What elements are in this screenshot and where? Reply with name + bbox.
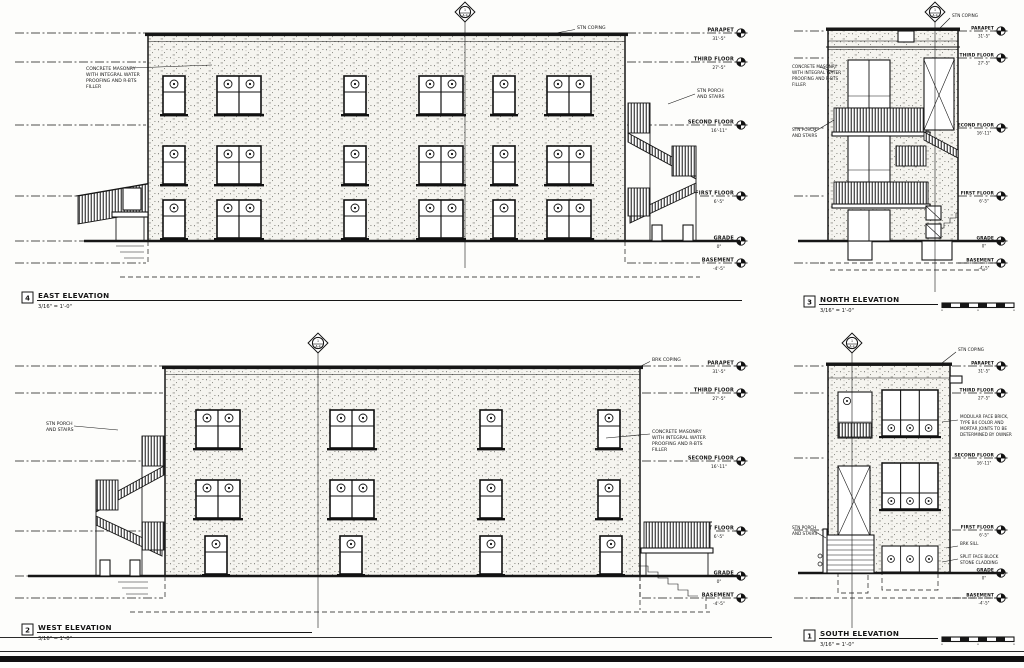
- level-value: -4'-5": [979, 601, 990, 606]
- level-marker-icon: [735, 259, 748, 267]
- level-value: 27'-5": [978, 61, 990, 66]
- annotation: CONCRETE MASONRY: [652, 429, 702, 435]
- level-value: 6'-5": [979, 533, 989, 538]
- sheet-border-line: [0, 651, 1024, 652]
- south-entry-steps: [818, 529, 874, 573]
- level-marker-icon: [735, 527, 748, 535]
- annotation: AND STAIRS: [792, 133, 817, 138]
- level-marker-icon: [995, 594, 1008, 602]
- level-label: BASEMENT: [966, 593, 994, 599]
- level-marker-icon: [995, 259, 1008, 267]
- level-label: BASEMENT: [966, 258, 994, 264]
- annotation: CONCRETE MASONRY: [792, 64, 838, 69]
- drawing-scale: 3/16" = 1'-0": [820, 642, 854, 648]
- level-value: 31'-5": [712, 369, 725, 375]
- annotation: BRK COPING: [652, 357, 681, 363]
- level-value: 16'-11": [711, 128, 727, 134]
- section-num: 1: [934, 8, 936, 12]
- annotation: SPLIT FACE BLOCK: [960, 554, 999, 559]
- level-marker-icon: [995, 124, 1008, 132]
- annotation: STN PORCH: [792, 525, 816, 530]
- level-label: SECOND FLOOR: [954, 123, 994, 129]
- west-elevation-drawing: PARAPET 31'-5" THIRD FLOOR 27'-5" SECOND…: [0, 330, 790, 668]
- level-marker-icon: [735, 362, 748, 370]
- level-marker-icon: [995, 362, 1008, 370]
- graphic-scale-bar: [942, 637, 1014, 645]
- annotation: PROOFING AND R-BTS: [792, 76, 838, 81]
- drawing-title: EAST ELEVATION: [38, 291, 109, 300]
- annotation: FILLER: [792, 82, 806, 87]
- annotation: STN COPING: [958, 347, 984, 352]
- annotation: AND STAIRS: [792, 531, 817, 536]
- level-value: -4'-5": [713, 266, 725, 272]
- level-value: 0": [982, 244, 987, 249]
- annotation: MORTAR JOINTS TO BE: [960, 426, 1007, 431]
- level-marker-icon: [735, 121, 748, 129]
- east-right-stair: [628, 103, 696, 241]
- level-value: 6'-5": [714, 534, 724, 540]
- level-label: PARAPET: [971, 361, 994, 367]
- section-sheet: A-4: [932, 14, 937, 18]
- annotation: MODULAR FACE BRICK,: [960, 414, 1008, 419]
- drawing-sheet: PARAPET 31'-5" THIRD FLOOR 27'-5" SECOND…: [0, 0, 1024, 668]
- level-value: 31'-5": [978, 369, 990, 374]
- level-label: SECOND FLOOR: [688, 120, 734, 126]
- drawing-number: 3: [807, 299, 812, 307]
- drawing-number: 1: [807, 633, 812, 641]
- annotation: DETERMINED BY OWNER: [960, 432, 1012, 437]
- level-value: 0": [717, 579, 722, 585]
- drawing-scale: 3/16" = 1'-0": [38, 304, 72, 310]
- level-value: 16'-11": [977, 131, 992, 136]
- level-label: THIRD FLOOR: [960, 388, 995, 394]
- section-num: 1: [464, 8, 466, 12]
- level-value: 0": [717, 244, 722, 250]
- level-label: THIRD FLOOR: [694, 57, 734, 63]
- annotation: PROOFING AND R-BTS: [86, 78, 137, 84]
- graphic-scale-bar: [942, 303, 1014, 311]
- level-value: 27'-5": [978, 396, 990, 401]
- east-title-block: 4 EAST ELEVATION 3/16" = 1'-0": [22, 291, 742, 310]
- level-label: PARAPET: [707, 361, 734, 367]
- level-marker-icon: [735, 192, 748, 200]
- section-num: 1: [851, 339, 853, 343]
- annotation: STN PORCH: [792, 127, 816, 132]
- level-label: FIRST FLOOR: [961, 525, 995, 531]
- annotation: PROOFING AND R-BTS: [652, 441, 703, 447]
- section-sheet: A-4: [315, 345, 320, 349]
- level-marker-icon: [735, 389, 748, 397]
- level-label: FIRST FLOOR: [695, 191, 734, 197]
- north-elevation-drawing: PARAPET 31'-5" THIRD FLOOR 27'-5" SECOND…: [790, 0, 1024, 330]
- level-label: THIRD FLOOR: [694, 388, 734, 394]
- level-label: SECOND FLOOR: [954, 453, 994, 459]
- annotation: AND STAIRS: [697, 94, 725, 100]
- level-value: 31'-5": [978, 34, 990, 39]
- west-title-block: 2 WEST ELEVATION 3/16" = 1'-0": [22, 623, 312, 642]
- level-value: 6'-5": [714, 199, 724, 205]
- level-label: BASEMENT: [702, 258, 735, 264]
- drawing-number: 2: [25, 627, 30, 635]
- level-label: THIRD FLOOR: [960, 53, 995, 59]
- level-value: 16'-11": [711, 464, 727, 470]
- level-marker-icon: [735, 29, 748, 37]
- level-marker-icon: [995, 526, 1008, 534]
- annotation: FILLER: [652, 447, 668, 453]
- level-value: 27'-5": [712, 396, 725, 402]
- section-num: 1: [317, 339, 319, 343]
- annotation: TYPE B4 COLOR AND: [959, 420, 1004, 425]
- annotation: WITH INTEGRAL WATER: [652, 435, 707, 441]
- south-title-block: 1 SOUTH ELEVATION 3/16" = 1'-0": [804, 629, 1014, 648]
- level-value: -4'-5": [713, 601, 725, 607]
- south-elevation-drawing: PARAPET 31'-5" THIRD FLOOR 27'-5" SECOND…: [790, 330, 1024, 668]
- east-left-porch: [76, 184, 148, 259]
- level-label: BASEMENT: [702, 593, 735, 599]
- level-label: PARAPET: [971, 26, 994, 32]
- section-sheet: A-4: [462, 14, 467, 18]
- sheet-edge-bar: [0, 656, 1024, 662]
- level-marker-icon: [995, 54, 1008, 62]
- annotation: STN COPING: [577, 25, 606, 31]
- level-marker-icon: [995, 389, 1008, 397]
- section-sheet: A-4: [849, 345, 854, 349]
- drawing-number: 4: [25, 295, 30, 303]
- sheet-border-line: [0, 637, 772, 638]
- level-label: PARAPET: [707, 28, 734, 34]
- level-value: 27'-5": [712, 65, 725, 71]
- level-marker-icon: [995, 454, 1008, 462]
- level-marker-icon: [735, 594, 748, 602]
- west-left-stair: [96, 436, 164, 594]
- level-label: SECOND FLOOR: [688, 456, 734, 462]
- annotation: AND STAIRS: [46, 427, 74, 433]
- annotation: STN PORCH: [697, 88, 724, 94]
- level-label: FIRST FLOOR: [961, 191, 995, 197]
- annotation: CONCRETE MASONRY: [86, 66, 136, 72]
- level-value: 31'-5": [712, 36, 725, 42]
- annotation: STONE CLADDING: [960, 560, 998, 565]
- level-value: 16'-11": [977, 461, 992, 466]
- north-title-block: 3 NORTH ELEVATION 3/16" = 1'-0": [804, 295, 1014, 314]
- drawing-title: WEST ELEVATION: [38, 623, 112, 632]
- annotation: FILLER: [86, 84, 102, 90]
- level-value: 6'-5": [979, 199, 989, 204]
- level-marker-icon: [735, 58, 748, 66]
- annotation: STN PORCH: [46, 421, 73, 427]
- east-elevation-drawing: PARAPET 31'-5" THIRD FLOOR 27'-5" SECOND…: [0, 0, 790, 330]
- drawing-scale: 3/16" = 1'-0": [820, 308, 854, 314]
- level-value: 0": [982, 576, 987, 581]
- level-marker-icon: [735, 457, 748, 465]
- drawing-title: SOUTH ELEVATION: [820, 629, 899, 638]
- drawing-title: NORTH ELEVATION: [820, 295, 899, 304]
- level-marker-icon: [995, 192, 1008, 200]
- annotation: STN COPING: [952, 13, 978, 18]
- annotation: WITH INTEGRAL WATER: [86, 72, 141, 78]
- annotation: BRK SILL: [960, 541, 979, 546]
- annotation: WITH INTEGRAL WATER: [792, 70, 841, 75]
- level-marker-icon: [995, 27, 1008, 35]
